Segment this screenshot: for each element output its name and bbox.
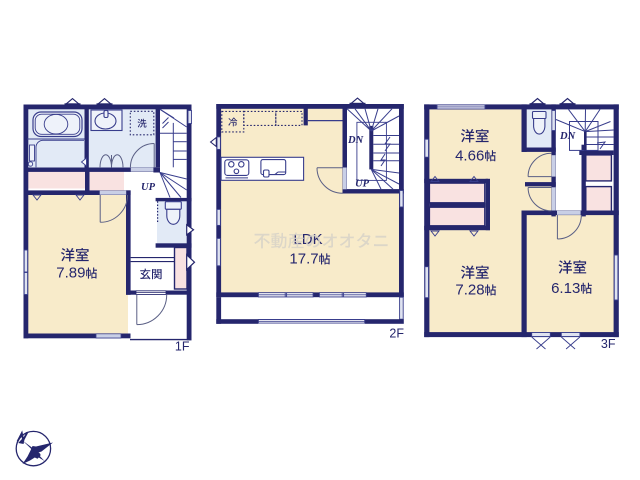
svg-text:7.28: 7.28	[455, 282, 484, 299]
svg-text:7.89: 7.89	[56, 265, 85, 282]
svg-text:1F: 1F	[175, 340, 190, 354]
svg-text:UP: UP	[355, 179, 370, 190]
svg-text:17.7: 17.7	[289, 251, 318, 268]
svg-text:4.66: 4.66	[455, 147, 484, 164]
svg-text:3F: 3F	[601, 337, 616, 351]
svg-text:2F: 2F	[389, 327, 404, 341]
svg-text:DN: DN	[559, 131, 576, 142]
svg-text:6.13: 6.13	[551, 280, 580, 297]
svg-text:UP: UP	[141, 182, 156, 193]
svg-text:DN: DN	[347, 135, 364, 146]
